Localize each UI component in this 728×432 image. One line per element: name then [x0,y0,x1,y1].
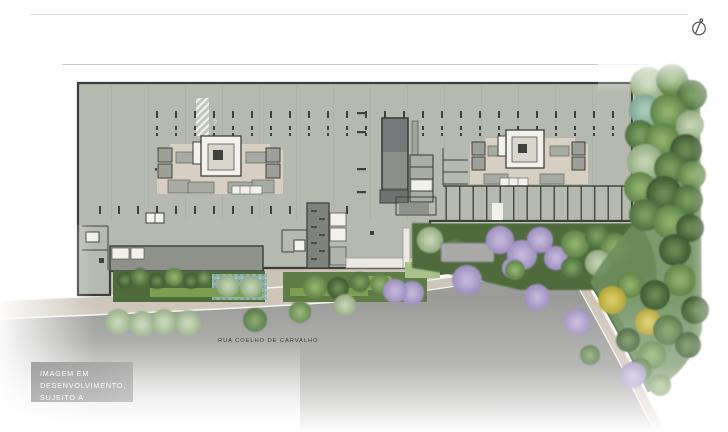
tower1-core [157,136,283,194]
disclaimer-line: IMAGEM EM [40,368,133,380]
hatched-ramp [196,98,209,136]
north-compass-icon [693,19,706,35]
canopy-roof [441,243,494,262]
disclaimer-box: IMAGEM EM DESENVOLVIMENTO, SUJEITO A ALT… [31,362,133,402]
disclaimer-line: SUJEITO A ALTERAÇÃO [40,392,133,416]
tower2-core [470,130,588,186]
street-label: RUA COELHO DE CARVALHO [218,338,318,344]
disclaimer-line: DESENVOLVIMENTO, [40,380,133,392]
podium-strip [110,246,263,271]
hatch-mark: ? [212,118,217,128]
